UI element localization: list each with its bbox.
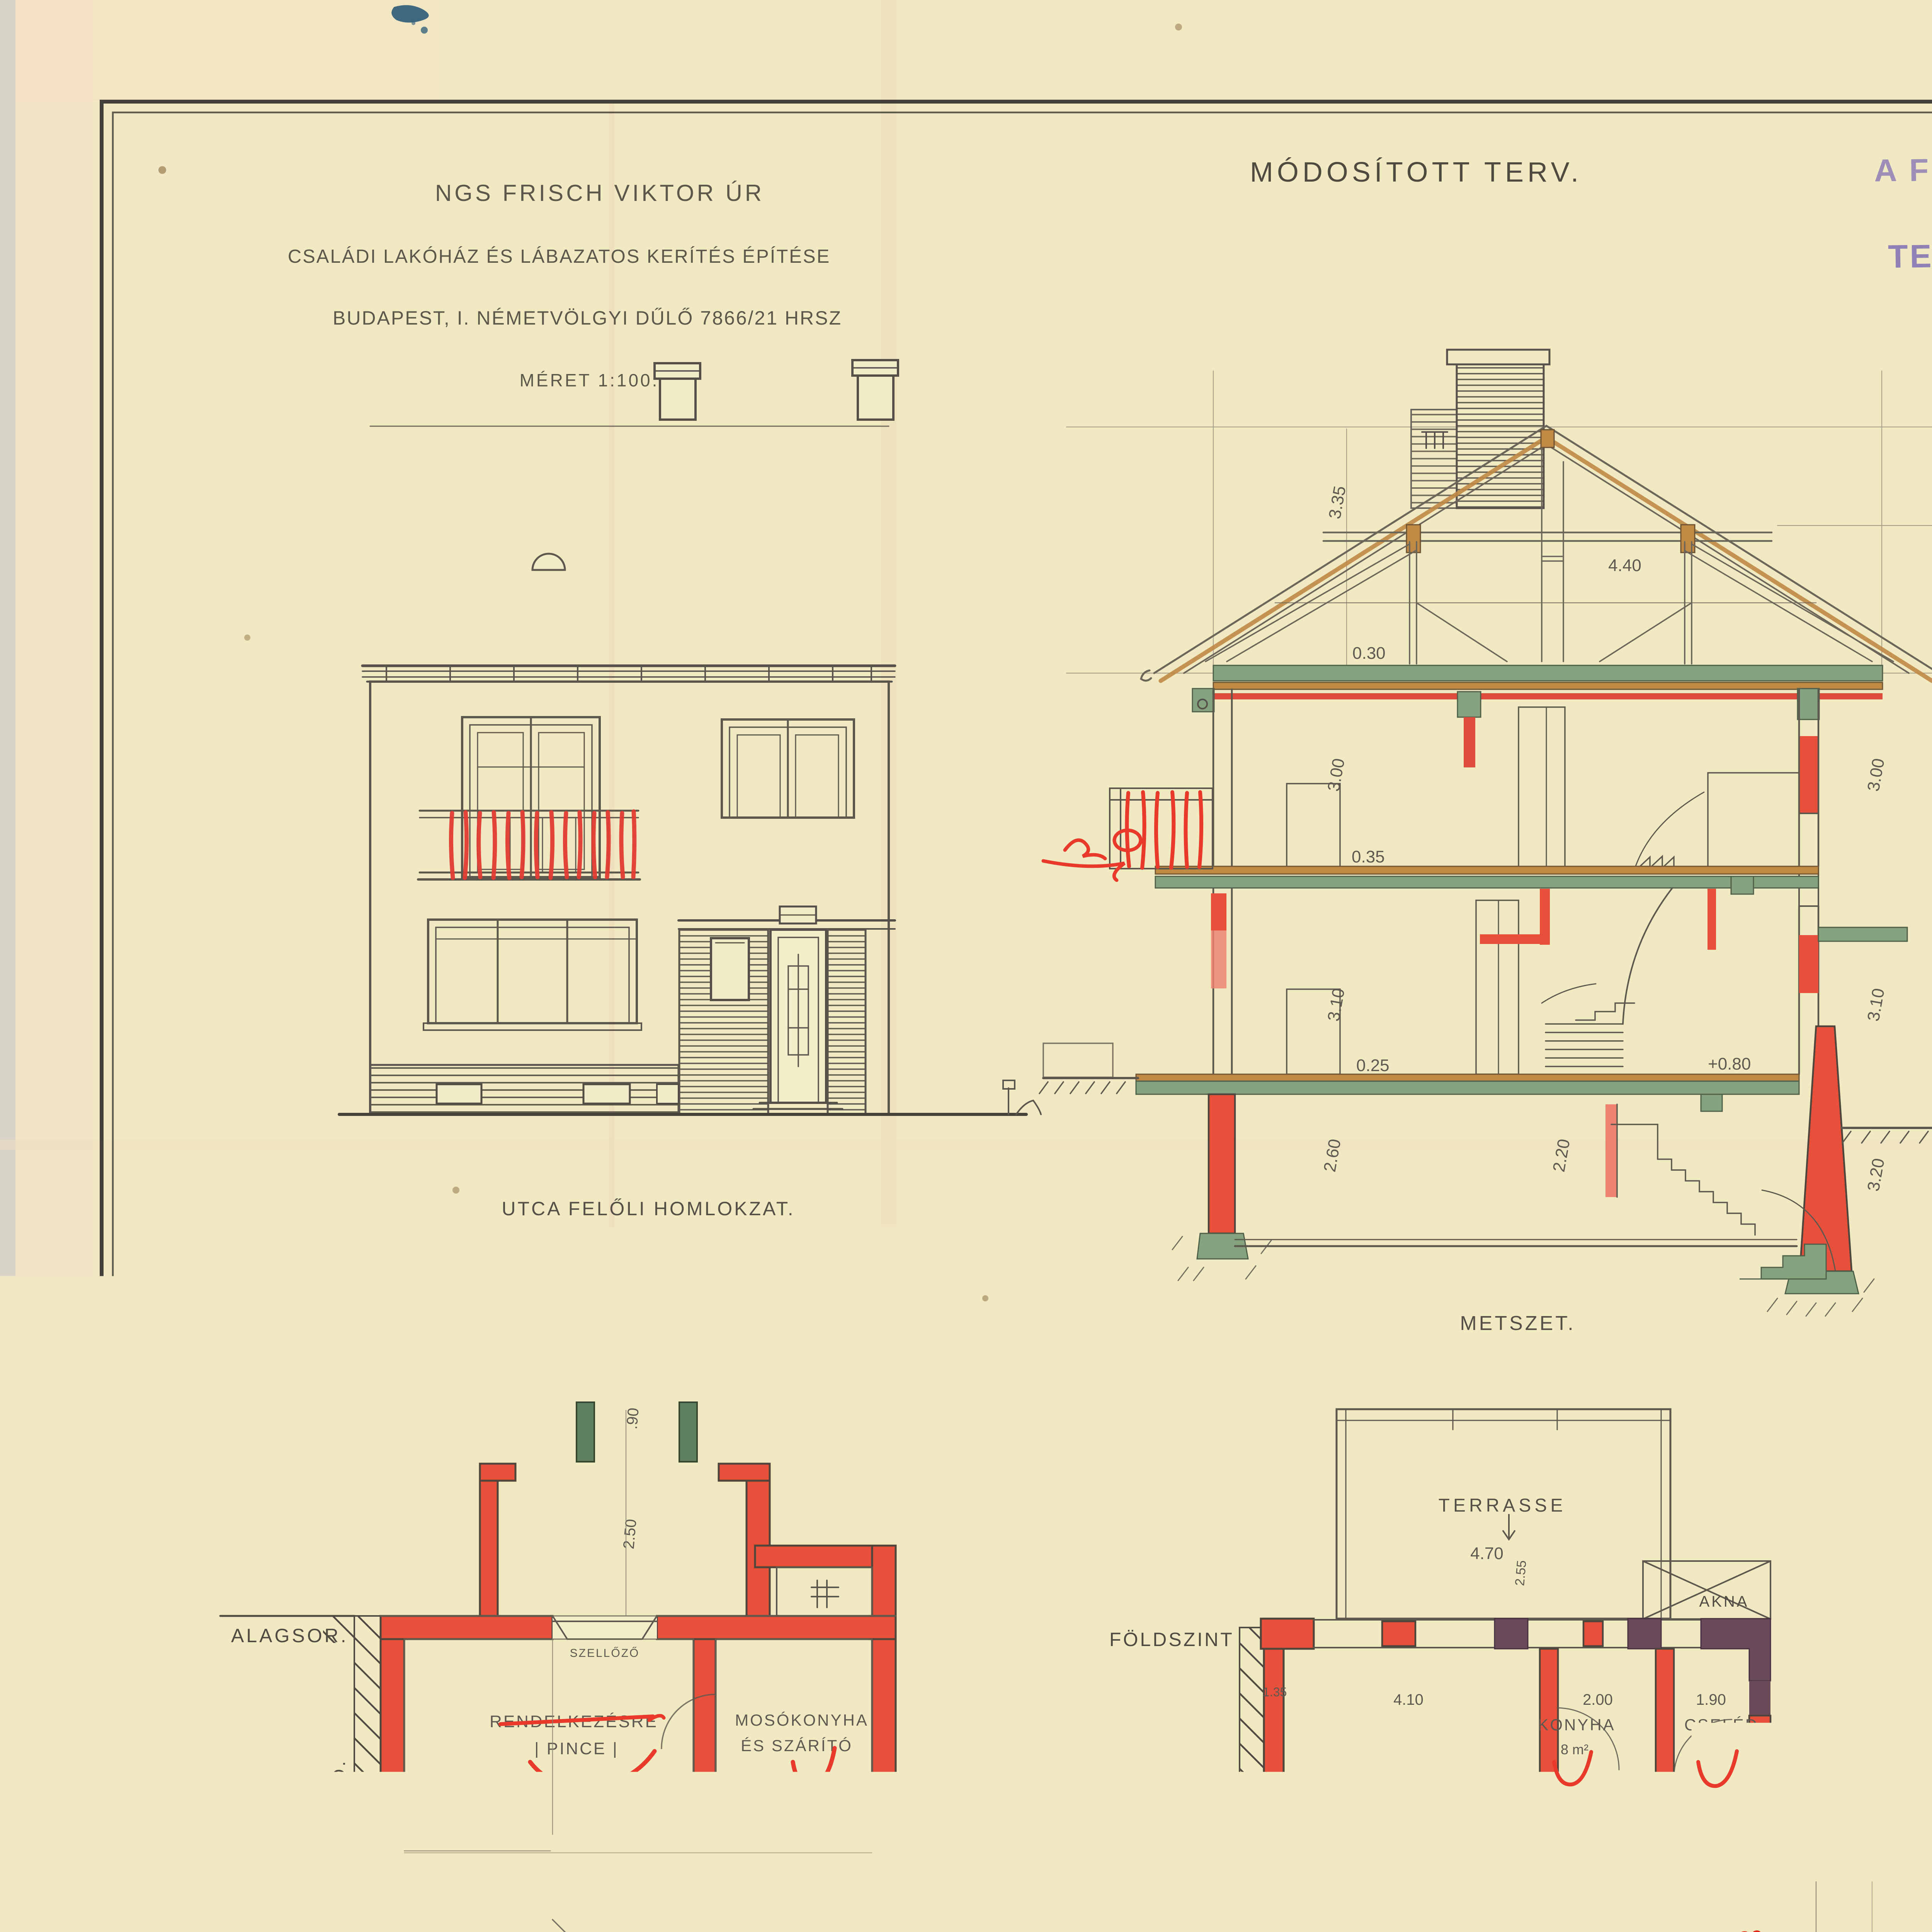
svg-text:4.10: 4.10 [1393, 1691, 1423, 1708]
svg-text:KONYHA: KONYHA [1537, 1716, 1615, 1734]
svg-text:4.70: 4.70 [1470, 1544, 1503, 1563]
svg-text:4.40: 4.40 [1608, 556, 1641, 575]
svg-text:W.C.: W.C. [1700, 1919, 1729, 1932]
svg-text:| PINCE |: | PINCE | [534, 1739, 619, 1758]
svg-text:0.30: 0.30 [1352, 644, 1386, 663]
svg-text:FÖLDSZINT: FÖLDSZINT [1109, 1629, 1234, 1650]
svg-text:+0.80: +0.80 [1708, 1054, 1751, 1073]
svg-text:2.835: 2.835 [777, 1835, 822, 1855]
svg-text:2.35: 2.35 [895, 1807, 912, 1833]
svg-text:2.50: 2.50 [620, 1518, 640, 1549]
svg-text:KAMRA: KAMRA [1696, 1853, 1754, 1869]
svg-text:4.28: 4.28 [748, 1783, 769, 1816]
svg-text:4.03: 4.03 [1598, 1779, 1616, 1808]
svg-text:6 m²: 6 m² [1709, 1742, 1736, 1757]
svg-text:MÉRET 1:100.: MÉRET 1:100. [520, 370, 659, 390]
svg-text:AKNA: AKNA [1699, 1593, 1749, 1610]
svg-text:UTCA FELŐLI HOMLOKZAT.: UTCA FELŐLI HOMLOKZAT. [502, 1198, 795, 1219]
svg-text:BUDAPEST, I. NÉMETVÖLGYI DŰLŐ: BUDAPEST, I. NÉMETVÖLGYI DŰLŐ 7866/21 HR… [333, 307, 842, 329]
svg-text:2.00: 2.00 [1583, 1691, 1613, 1708]
svg-text:5.33: 5.33 [486, 1783, 507, 1816]
svg-text:2.55: 2.55 [1512, 1560, 1529, 1586]
svg-text:CSELÉD: CSELÉD [1684, 1716, 1759, 1734]
svg-text:0.495: 0.495 [384, 1817, 402, 1851]
svg-text:SZOBA: SZOBA [1390, 1890, 1410, 1932]
svg-text:0.25: 0.25 [1356, 1056, 1389, 1075]
svg-text:BEÉPÍTETT SZOMSZÉD.: BEÉPÍTETT SZOMSZÉD. [329, 1759, 349, 1932]
svg-text:TERVTÁRÁNAK példánya: TERVTÁRÁNAK példánya [1888, 232, 1932, 275]
svg-text:NGS FRISCH VIKTOR ÚR: NGS FRISCH VIKTOR ÚR [435, 180, 764, 206]
svg-text:A Fővárosi Önkormányzat: A Fővárosi Önkormányzat [1874, 147, 1932, 189]
svg-text:METSZET.: METSZET. [1460, 1312, 1575, 1335]
svg-text:1.90: 1.90 [1696, 1691, 1726, 1708]
svg-text:0.35: 0.35 [1352, 847, 1385, 866]
svg-text:ALAGSOR.: ALAGSOR. [231, 1625, 349, 1646]
svg-text:CSALÁDI LAKÓHÁZ ÉS LÁBAZATOS K: CSALÁDI LAKÓHÁZ ÉS LÁBAZATOS KERÍTÉS ÉPÍ… [288, 246, 831, 267]
svg-text:1.35: 1.35 [1263, 1685, 1287, 1699]
svg-text:MÓDOSÍTOTT TERV.: MÓDOSÍTOTT TERV. [1250, 157, 1582, 188]
svg-text:8 m²: 8 m² [1561, 1742, 1588, 1757]
svg-text:TERRASSE: TERRASSE [1439, 1495, 1566, 1516]
svg-text:NAPPALI: NAPPALI [1359, 1884, 1379, 1932]
svg-text:SZELLŐZŐ: SZELLŐZŐ [570, 1647, 640, 1660]
